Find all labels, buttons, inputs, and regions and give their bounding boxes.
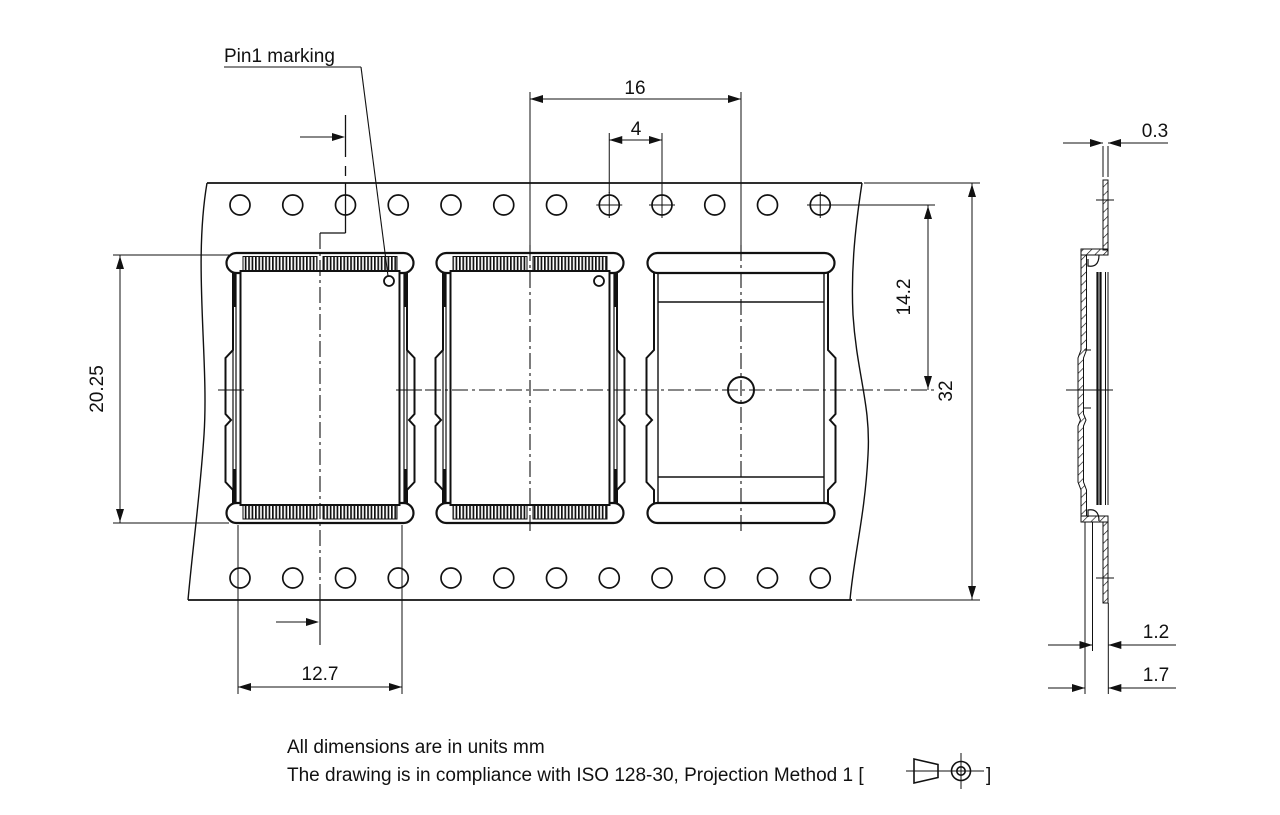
side-bottom-flange (1081, 516, 1108, 522)
technical-drawing-canvas: Pin1 marking 16 4 20.25 12.7 14.2 32 0.3… (0, 0, 1280, 815)
sprocket-hole (705, 568, 725, 588)
pocket-with-component (436, 245, 625, 532)
arrowhead (116, 256, 124, 269)
arrowhead (306, 618, 319, 626)
arrowhead (238, 683, 251, 691)
arrowhead (1090, 139, 1103, 147)
pocket-wall-dark-segment (443, 273, 447, 307)
carrier-tape-drawing: Pin1 marking 16 4 20.25 12.7 14.2 32 0.3… (0, 0, 1280, 815)
arrowhead (924, 376, 932, 389)
break-line-right (850, 183, 868, 600)
pocket-wall-dark-segment (443, 469, 447, 503)
dim-hole-pitch: 4 (631, 119, 642, 140)
tape-side-view (1066, 180, 1114, 603)
arrowhead (1108, 139, 1121, 147)
sprocket-hole (494, 568, 514, 588)
pin1-leader-line (361, 67, 388, 276)
pocket-side-wall-contour (828, 273, 836, 503)
side-pocket-wall (1078, 255, 1087, 516)
sprocket-hole (810, 568, 830, 588)
pocket-side-wall-contour (436, 273, 444, 503)
pocket-wall-dark-segment (404, 273, 408, 307)
arrowhead (1108, 641, 1121, 649)
side-hook-top (1088, 255, 1099, 266)
empty-pocket (647, 245, 836, 532)
sprocket-hole (283, 195, 303, 215)
sprocket-hole (547, 568, 567, 588)
lead-comb (453, 505, 527, 519)
dim-pocket-pitch: 16 (624, 78, 645, 99)
sprocket-hole (547, 195, 567, 215)
dim-tape-width: 32 (936, 380, 957, 401)
tape-pockets (226, 245, 836, 532)
pocket-side-wall-contour (226, 273, 234, 503)
sprocket-hole (705, 195, 725, 215)
pin1-marking-circle (594, 276, 604, 286)
arrowhead (530, 95, 543, 103)
pocket-side-wall-contour (647, 273, 655, 503)
arrowhead (728, 95, 741, 103)
arrowhead (609, 136, 622, 144)
sprocket-hole (230, 568, 250, 588)
sprocket-hole (494, 195, 514, 215)
pocket-wall-dark-segment (614, 469, 618, 503)
pin1-marking-label: Pin1 marking (224, 46, 335, 67)
arrowhead (968, 184, 976, 197)
arrowhead (649, 136, 662, 144)
side-top-flange (1081, 249, 1108, 255)
sprocket-hole (758, 195, 778, 215)
dim-total-depth: 1.7 (1143, 665, 1169, 686)
pocket-side-wall-contour (407, 273, 415, 503)
pocket-wall-dark-segment (233, 469, 237, 503)
sprocket-hole (441, 195, 461, 215)
arrowhead (924, 206, 932, 219)
lead-comb (243, 505, 317, 519)
break-line-left (188, 183, 207, 600)
pocket-wall-dark-segment (614, 273, 618, 307)
pocket-wall-dark-segment (233, 273, 237, 307)
sprocket-hole (388, 195, 408, 215)
pin1-marking-circle (384, 276, 394, 286)
dim-hole-to-center: 14.2 (894, 279, 915, 316)
pocket-side-wall-contour (617, 273, 625, 503)
arrowhead (968, 586, 976, 599)
arrowhead (116, 509, 124, 522)
lead-comb (533, 257, 607, 271)
arrowhead (332, 133, 345, 141)
sprocket-hole (230, 195, 250, 215)
lead-comb (243, 257, 317, 271)
pocket-wall-dark-segment (404, 469, 408, 503)
lead-comb (453, 257, 527, 271)
note-units: All dimensions are in units mm (287, 737, 545, 758)
dim-tape-thickness: 0.3 (1142, 121, 1168, 142)
arrowhead (1108, 684, 1121, 692)
dim-cavity-depth: 1.2 (1143, 622, 1169, 643)
side-top-strip (1103, 180, 1108, 250)
sprocket-hole (441, 568, 461, 588)
sprocket-hole (652, 568, 672, 588)
side-bottom-strip (1103, 522, 1108, 603)
note-compliance-close: ] (986, 765, 991, 786)
arrowhead (1080, 641, 1093, 649)
sprocket-hole (758, 568, 778, 588)
sprocket-hole (283, 568, 303, 588)
sprocket-hole (336, 568, 356, 588)
lead-comb (533, 505, 607, 519)
sprocket-hole (599, 568, 619, 588)
first-angle-projection-symbol (906, 753, 984, 789)
dim-pocket-length: 20.25 (87, 365, 108, 413)
arrowhead (1072, 684, 1085, 692)
arrowhead (389, 683, 402, 691)
note-compliance: The drawing is in compliance with ISO 12… (287, 765, 864, 786)
dim-pocket-width: 12.7 (302, 664, 339, 685)
sprocket-hole (388, 568, 408, 588)
lead-comb (323, 505, 397, 519)
tape-front-view (188, 183, 868, 600)
